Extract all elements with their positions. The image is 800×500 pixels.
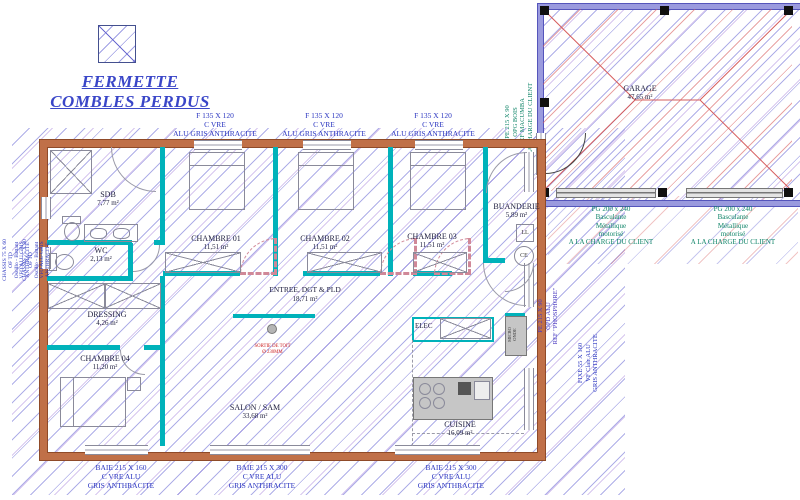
floorplan-sheet: FERMETTE COMBLES PERDUS GARAGE 47,65 m² … (0, 0, 800, 500)
label-line: Basculante (551, 213, 671, 221)
window-label-baie2: BAIE 215 X 300 C VRE ALU GRIS ANTHRACITE (202, 464, 322, 491)
dressing-wardrobe-1 (48, 283, 106, 309)
window-label-f1: F 135 X 120 C VRE ALU GRIS ANTHRACITE (155, 112, 275, 139)
partition-wc-bottom (47, 276, 133, 281)
room-area: 11,51 m² (265, 243, 385, 251)
window-opening-baie1 (85, 445, 148, 455)
roof-outlet-symbol (267, 324, 277, 334)
label-line: PG 200 x 240 (673, 205, 793, 213)
bed-ch01 (189, 152, 245, 210)
room-area: 11,51 m² (156, 243, 276, 251)
room-label-chambre03: CHAMBRE 03 11,51 m² (372, 232, 492, 250)
roof-legend-icon (98, 25, 136, 63)
double-vanity (84, 224, 138, 242)
partition-salon-stub (233, 314, 315, 318)
toilet-sdb (64, 222, 80, 241)
room-name: CUISINE (400, 420, 520, 429)
nightstand (127, 377, 141, 391)
kitchen-counter (413, 377, 493, 420)
garage-structure (538, 4, 800, 206)
water-heater: CE (514, 246, 534, 266)
room-name-garage: GARAGE (580, 84, 700, 93)
partition-ch04-top (47, 345, 120, 350)
label-line: motorisé (673, 230, 793, 238)
room-area: 11,20 m² (45, 363, 165, 371)
garage-door-opening (686, 188, 783, 198)
room-label-elec: ELEC (415, 322, 433, 330)
room-name: CHAMBRE 04 (45, 354, 165, 363)
appliance-label: MICRO ONDE (508, 318, 518, 351)
label-line: motorisé (551, 230, 671, 238)
garage-post (540, 6, 549, 15)
label-line: Métallique (551, 222, 671, 230)
washing-machine: LL (516, 224, 534, 242)
window-opening-baie2 (210, 445, 310, 455)
placard-ch03 (413, 252, 467, 273)
label-line: VF Clair ALU (585, 288, 593, 438)
room-area: 11,51 m² (372, 241, 492, 249)
room-name: ENTREE, DGT & PLD (240, 286, 370, 295)
room-area: 33,68 m² (185, 412, 325, 420)
label-line: Ø 230MM (235, 350, 310, 356)
room-label-sdb: SDB 7,77 m² (78, 190, 138, 208)
label-line: PG 200 x 240 (551, 205, 671, 213)
window-label-baie3: BAIE 215 X 300 C VRE ALU GRIS ANTHRACITE (391, 464, 511, 491)
room-label-salon: SALON / SAM 33,68 m² (185, 403, 325, 421)
garage-door-opening (556, 188, 656, 198)
label-line: OPD ALU (545, 260, 553, 372)
room-label-buanderie: BUANDERIE 5,89 m² (474, 202, 559, 220)
window-opening-baie3 (395, 445, 480, 455)
room-name: DRESSING (47, 310, 167, 319)
label-line: FIXE 55 X 160 (577, 288, 585, 438)
entry-door-label: PE 215 X 90 OPD ALU REF "PHOSPHORE" (537, 260, 560, 372)
room-name: CHAMBRE 03 (372, 232, 492, 241)
room-label-cuisine: CUISINE 16,09 m² (400, 420, 520, 438)
room-area-garage: 47,65 m² (580, 93, 700, 101)
room-name: CHAMBRE 01 (156, 234, 276, 243)
label-line: ONDE (513, 318, 518, 351)
window-label-f3: F 135 X 120 C VRE ALU GRIS ANTHRACITE (373, 112, 493, 139)
window-opening-f1 (194, 140, 242, 150)
room-label-garage: GARAGE 47,65 m² (580, 84, 700, 102)
room-label-dressing: DRESSING 4,26 m² (47, 310, 167, 328)
roof-outlet-label: SORTIE DE TOIT Ø 230MM (235, 344, 310, 356)
elec-closet-cross (440, 318, 491, 339)
window-label-chassis-75x80: CHASSIS 75 X 80 OF TD Oscillo - Battant … (23, 185, 52, 335)
label-line: A LA CHARGE DU CLIENT (551, 238, 671, 246)
plan-title-line1: FERMETTE (20, 72, 240, 92)
garage-post (658, 188, 667, 197)
window-opening-f3 (415, 140, 463, 150)
garage-post (784, 6, 793, 15)
window-label-f2: F 135 X 120 C VRE ALU GRIS ANTHRACITE (264, 112, 384, 139)
label-line: ANTHRACITE (46, 185, 52, 335)
room-area: 5,89 m² (474, 211, 559, 219)
label-line: GRIS ANTHRACITE (202, 482, 322, 491)
window-label-baie1: BAIE 215 X 160 C VRE ALU GRIS ANTHRACITE (61, 464, 181, 491)
label-line: GRIS ANTHRACITE (592, 288, 600, 438)
room-label-chambre02: CHAMBRE 02 11,51 m² (265, 234, 385, 252)
room-label-wc: WC 2,13 m² (76, 246, 126, 264)
label-line: ALU GRIS ANTHRACITE (264, 130, 384, 139)
toilet-wc (55, 254, 74, 270)
bed-ch03 (410, 152, 466, 210)
shower (50, 150, 92, 194)
bed-ch02 (298, 152, 354, 210)
placard-ch01 (165, 252, 241, 273)
room-name: SALON / SAM (185, 403, 325, 412)
room-name: BUANDERIE (474, 202, 559, 211)
plan-title-line2: COMBLES PERDUS (20, 92, 240, 112)
window-opening-f2 (303, 140, 351, 150)
label-line: GRIS ANTHRACITE (391, 482, 511, 491)
plan-title: FERMETTE COMBLES PERDUS (20, 72, 240, 112)
label-line: ALU GRIS ANTHRACITE (155, 130, 275, 139)
label-line: GRIS ANTHRACITE (61, 482, 181, 491)
dressing-wardrobe-2 (104, 283, 161, 309)
label-line: Basculante (673, 213, 793, 221)
label-line: Métallique (673, 222, 793, 230)
fixed-window-label: FIXE 55 X 160 VF Clair ALU GRIS ANTHRACI… (577, 288, 600, 438)
label-line: A LA CHARGE DU CLIENT (673, 238, 793, 246)
window-opening-fixe (524, 368, 534, 430)
placard-ch02 (307, 252, 382, 273)
room-label-chambre04: CHAMBRE 04 11,20 m² (45, 354, 165, 372)
bed-ch04 (60, 377, 126, 427)
room-name: SDB (78, 190, 138, 199)
label-line: REF "PHOSPHORE" (552, 260, 560, 372)
room-area: 4,26 m² (47, 319, 167, 327)
label-line: PE 215 X 90 (537, 260, 545, 372)
garage-post (540, 98, 549, 107)
garage-post (660, 6, 669, 15)
partition-sdb-right (160, 147, 165, 242)
room-area: 2,13 m² (76, 255, 126, 263)
room-name: CHAMBRE 02 (265, 234, 385, 243)
garage-door-label-1: PG 200 x 240 Basculante Métallique motor… (551, 205, 671, 246)
room-label-entree: ENTREE, DGT & PLD 18,71 m² (240, 286, 370, 303)
garage-door-label-2: PG 200 x 240 Basculante Métallique motor… (673, 205, 793, 246)
room-area: 7,77 m² (78, 199, 138, 207)
room-area: 18,71 m² (240, 295, 370, 303)
room-name: WC (76, 246, 126, 255)
room-area: 16,09 m² (400, 429, 520, 437)
garage-post (784, 188, 793, 197)
room-label-chambre01: CHAMBRE 01 11,51 m² (156, 234, 276, 252)
label-line: ALU GRIS ANTHRACITE (373, 130, 493, 139)
